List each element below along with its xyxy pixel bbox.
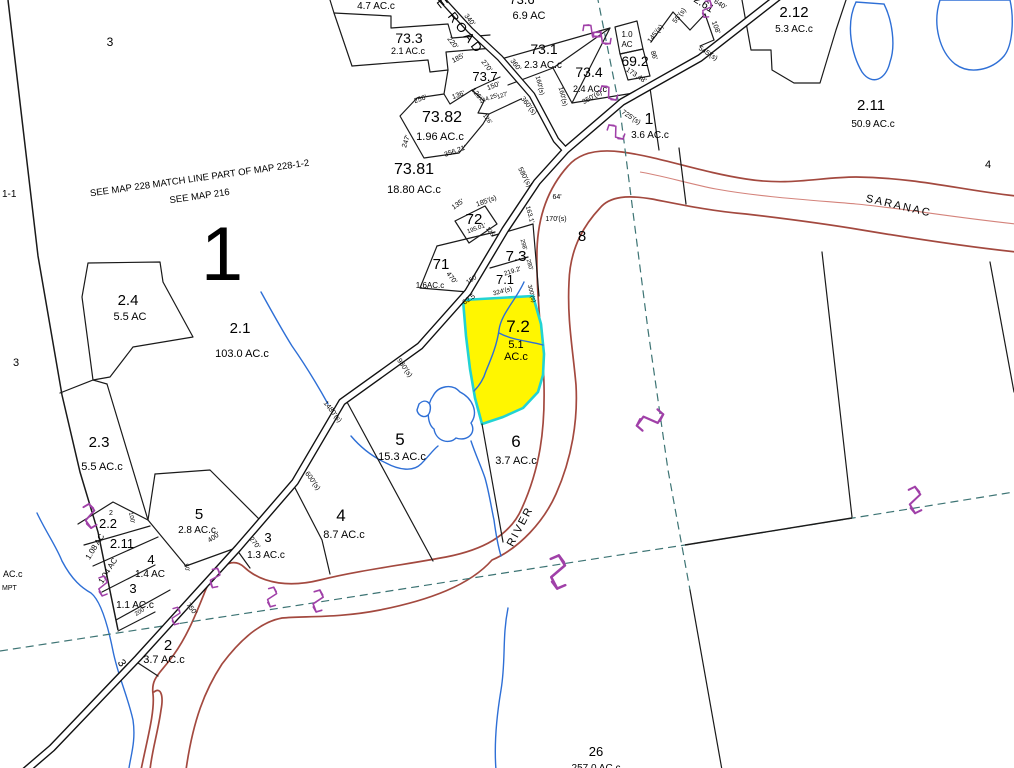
map-label: 2.3 AC.c [524, 60, 562, 71]
map-label: 73.4 [575, 64, 602, 80]
map-label: 136' [451, 90, 466, 101]
map-label: 5 [195, 506, 203, 523]
map-label: 3 [13, 357, 19, 369]
map-label: 3.6 AC.c [631, 130, 669, 141]
map-label: 470' [444, 271, 458, 286]
map-label: AC.c [3, 569, 23, 579]
map-label: 145'(s) [647, 24, 666, 45]
map-label: 50' [182, 563, 190, 572]
map-label: 6.9 AC [512, 10, 545, 22]
map-label: 86' [649, 50, 659, 61]
map-label: 173.48' [624, 67, 647, 85]
map-label: 5 [395, 430, 404, 449]
map-label: 5.5 AC [113, 311, 146, 323]
map-label: 356.21' [444, 144, 468, 158]
map-label: 4.7 AC.c [357, 1, 395, 12]
map-label: 1 [201, 212, 243, 297]
map-label: 7.2 [506, 317, 530, 336]
map-label: 126' [484, 226, 496, 238]
map-label: SEE MAP 216 [169, 187, 231, 206]
map-label: 4 [147, 552, 154, 567]
map-label: 2.11 [110, 536, 134, 551]
map-label: 3.7 AC.c [495, 455, 537, 467]
map-label: 280' [525, 259, 534, 271]
road-main [24, 0, 782, 768]
map-label: 257.0 AC.c [572, 763, 621, 768]
map-label: 3 [264, 530, 271, 545]
map-label: 5.3 AC.c [775, 24, 813, 35]
stream-crossing-symbol [264, 586, 280, 608]
map-label: 8 [578, 228, 586, 245]
parcel-map-page: 31-1SEE MAP 228 MATCH LINE PART OF MAP 2… [0, 0, 1014, 768]
map-label: 15.3 AC.c [378, 451, 426, 463]
map-label: AC.c [504, 351, 528, 363]
map-label: 163.1' [524, 205, 535, 224]
pond-top-right-1 [850, 2, 892, 80]
map-label: 324'(s) [492, 286, 513, 298]
boundary-line-south [690, 590, 722, 768]
map-label: 3 [107, 35, 114, 49]
pond-wetland-lobe [417, 401, 430, 416]
map-label: 2.2 [99, 516, 117, 531]
map-label: 2.1 AC.c [391, 46, 426, 56]
map-label: 600'(s) [303, 470, 321, 491]
map-label: 1 [645, 111, 654, 128]
map-label: 247' [401, 134, 412, 149]
map-label: 1.6AC.c [416, 281, 444, 290]
map-label: 580'(s) [516, 166, 532, 188]
map-label: 73.3 [395, 30, 422, 46]
map-label: 64' [552, 194, 561, 201]
map-label: 1.0 [621, 30, 633, 39]
map-label: SARANAC [865, 193, 933, 220]
map-label: 1.96 AC.c [416, 131, 464, 143]
map-label: 185' [451, 53, 466, 65]
map-label: 73.82 [422, 109, 462, 126]
map-label: 270' [247, 536, 261, 551]
parcel-26-north-boundary [685, 518, 852, 545]
map-label: 73.81 [394, 161, 434, 178]
map-label: 3 [129, 581, 136, 596]
map-label: 50.9 AC.c [851, 119, 894, 130]
map-label: 1.4 AC [135, 569, 165, 580]
map-label: 2.11 [857, 97, 885, 114]
map-label: 1.3 AC.c [247, 550, 285, 561]
map-label: 185'(s) [475, 195, 497, 209]
map-label: 71 [433, 256, 450, 273]
map-label: 73.6 [509, 0, 534, 7]
stream-crossing-symbol [547, 554, 569, 589]
map-label: 2.1 [230, 320, 251, 337]
pond-top-right-2 [937, 0, 1012, 70]
map-label: 1-1 [2, 189, 17, 200]
map-label: 980'(s) [395, 357, 413, 378]
map-label: 5.5 AC.c [81, 461, 123, 473]
map-label: 7.1 [496, 272, 514, 287]
map-label: 26 [589, 744, 603, 759]
map-label: 4 [985, 159, 991, 171]
map-label: 4 [336, 506, 345, 525]
map-label: 127' [496, 91, 509, 100]
river-island-fork [150, 690, 162, 768]
map-label: 256' [413, 94, 428, 105]
stream-crossing-symbol [907, 486, 924, 514]
map-label: 725'(s) [620, 109, 642, 126]
map-label: 18.80 AC.c [387, 184, 441, 196]
map-label: 5.1 [508, 339, 523, 351]
pond-wetland [428, 387, 474, 442]
stream-crossing-symbol [634, 408, 666, 432]
map-label: 103.0 AC.c [215, 348, 269, 360]
map-label: AC [621, 40, 632, 49]
stream-west [37, 513, 134, 768]
map-label: 7.3 [506, 248, 527, 265]
stream-south [495, 608, 508, 768]
map-label: 160'(s) [534, 75, 546, 96]
stream-parcel-2-1 [261, 292, 328, 404]
map-label: 160'(s) [557, 86, 569, 107]
map-label: 2.8 AC.c [178, 525, 216, 536]
map-label: 6 [511, 432, 520, 451]
map-label: 73.1 [530, 41, 557, 57]
map-label: 135' [451, 198, 466, 211]
map-label: 170'(s) [545, 216, 566, 223]
map-label: 55'(s) [672, 7, 688, 25]
river-centerline [640, 172, 1014, 224]
map-label: 1.1 AC.c [116, 600, 154, 611]
map-label: 8.7 AC.c [323, 529, 365, 541]
map-label: 2 [164, 637, 172, 654]
map-label: 2.12 [779, 4, 808, 21]
roads [24, 0, 782, 768]
map-label: 69.2 [621, 53, 648, 69]
map-label: E ROAD [434, 0, 488, 57]
parcel-map-canvas: 31-1SEE MAP 228 MATCH LINE PART OF MAP 2… [0, 0, 1014, 768]
map-label: MPT [2, 585, 18, 592]
map-label: 2.3 [89, 434, 110, 451]
map-label: 3.7 AC.c [143, 654, 185, 666]
map-label: 100' [127, 512, 135, 524]
map-label: 2.4 [118, 292, 139, 309]
